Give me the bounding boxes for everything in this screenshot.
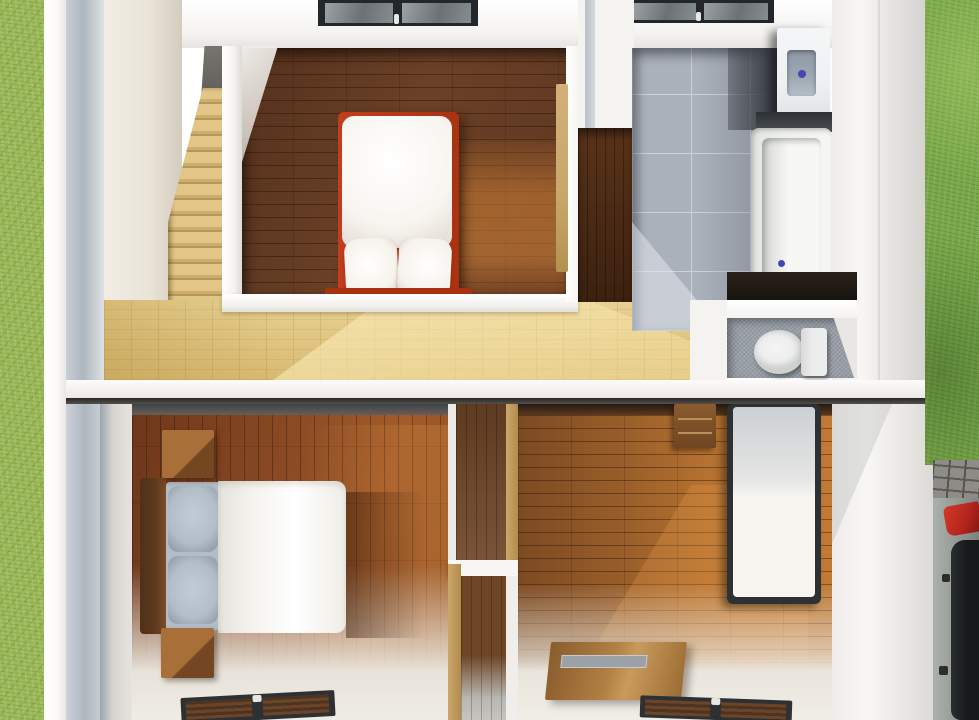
nightstand-bottom [161,628,214,678]
skylight-glass-pane [325,3,393,23]
closet-dark-wood-floor [578,128,634,302]
bed-shadow [346,492,424,638]
bedroom-bottom-wall [222,294,578,312]
pillow-gray-top [168,486,218,552]
toilet-tank [801,328,827,376]
closet-wall-upper [578,0,634,130]
outer-wall-left [44,0,66,720]
lawn-right [925,0,979,465]
skylight-window-bedroom [318,0,478,26]
toilet-bowl [754,330,804,374]
mattress [342,116,452,248]
floor-divider-band [66,380,925,398]
closet-column [448,404,518,720]
wc-storage-opening [727,272,857,302]
car-door-handle [942,574,950,582]
window-pane [263,694,330,715]
nightstand-top [162,430,214,478]
window-pane [186,698,253,719]
bathtub-inner [762,138,821,278]
window-pane [721,702,786,719]
desk-drawer-line [678,418,712,420]
closet-tan-post-right [506,404,518,562]
desk-drawer-line [678,432,712,434]
skylight-glass-pane [402,3,471,23]
skylight-handle [394,14,399,24]
wc-wall-left [690,300,727,380]
washing-machine [777,28,830,120]
outer-wall-right-lower [832,404,933,720]
parked-car [933,498,979,720]
closet-wall-gray-stripe [585,0,595,130]
wall-corner-shade [832,404,892,544]
lower-left-inner-wall [100,404,132,720]
low-table [545,642,687,700]
bedroom-sunlight-patch [460,140,566,296]
window-pane [645,700,710,717]
hallway-sunlight-patch [104,300,708,380]
wall-seam [878,0,880,380]
bedroom-left-wall [222,46,242,312]
pillow-gray-bottom [168,556,218,624]
closet-frame-right-lower [506,576,518,720]
wc-ledge [727,300,857,318]
lower-left-gray-wall [66,404,100,720]
bed-pillow-zone [166,482,220,630]
bedroom-door [556,84,568,272]
skylight-window-bathroom [627,0,774,23]
desk [674,404,716,448]
bathtub [751,128,832,288]
table-tray [560,655,647,668]
driveway-pavers [933,460,979,502]
lawn-left [0,0,44,720]
washer-knob [798,70,806,78]
double-bed-upper [338,112,459,300]
single-bed [727,404,821,604]
car-door-handle [939,666,948,675]
closet-interior-upper [456,404,506,560]
hallway-floor [104,300,708,380]
single-bed-shadow-top [733,407,815,497]
upper-left-gray-wall [66,0,104,380]
skylight-glass-pane [633,3,696,20]
window-handle [711,698,720,705]
bed-headboard [140,478,166,634]
bathtub-drain [778,260,785,267]
closet-tan-post-left [448,564,461,720]
car-windshield [951,540,979,720]
skylight-handle [696,12,701,21]
window-handle [252,695,261,702]
car-taillight [943,501,979,537]
bed-duvet [218,481,346,633]
closet-interior-lower [461,576,506,720]
skylight-glass-pane [704,3,768,20]
floor-plan-render [0,0,979,720]
window-bedroom-right [640,695,793,720]
